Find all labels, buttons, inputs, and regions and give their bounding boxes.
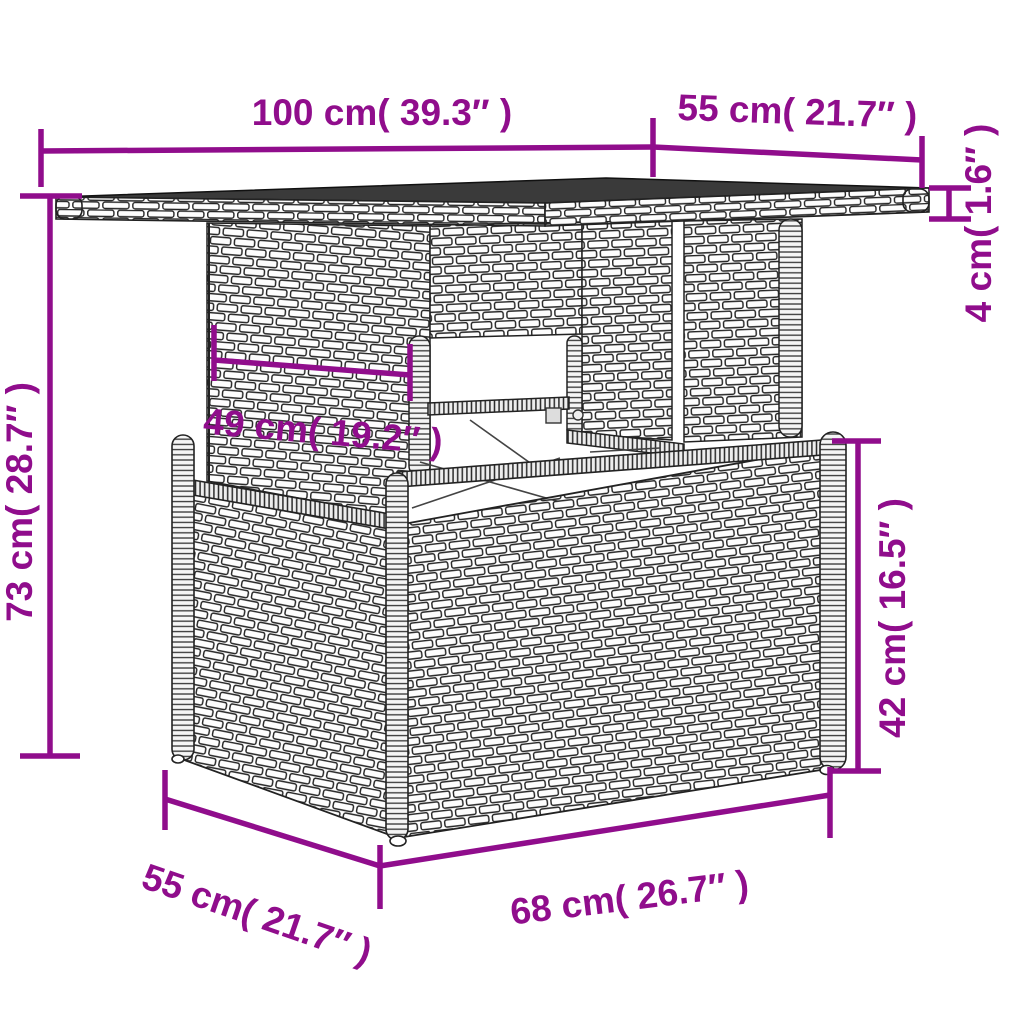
svg-text:55 cm( 21.7″ ): 55 cm( 21.7″ ) [677, 87, 918, 136]
svg-text:100 cm( 39.3″ ): 100 cm( 39.3″ ) [252, 92, 512, 133]
svg-text:55 cm( 21.7″ ): 55 cm( 21.7″ ) [137, 856, 377, 973]
svg-text:42 cm( 16.5″ ): 42 cm( 16.5″ ) [872, 498, 913, 738]
svg-text:4 cm( 1.6″ ): 4 cm( 1.6″ ) [958, 124, 999, 323]
svg-text:68 cm( 26.7″ ): 68 cm( 26.7″ ) [508, 863, 751, 933]
svg-text:73 cm( 28.7″ ): 73 cm( 28.7″ ) [0, 382, 40, 622]
